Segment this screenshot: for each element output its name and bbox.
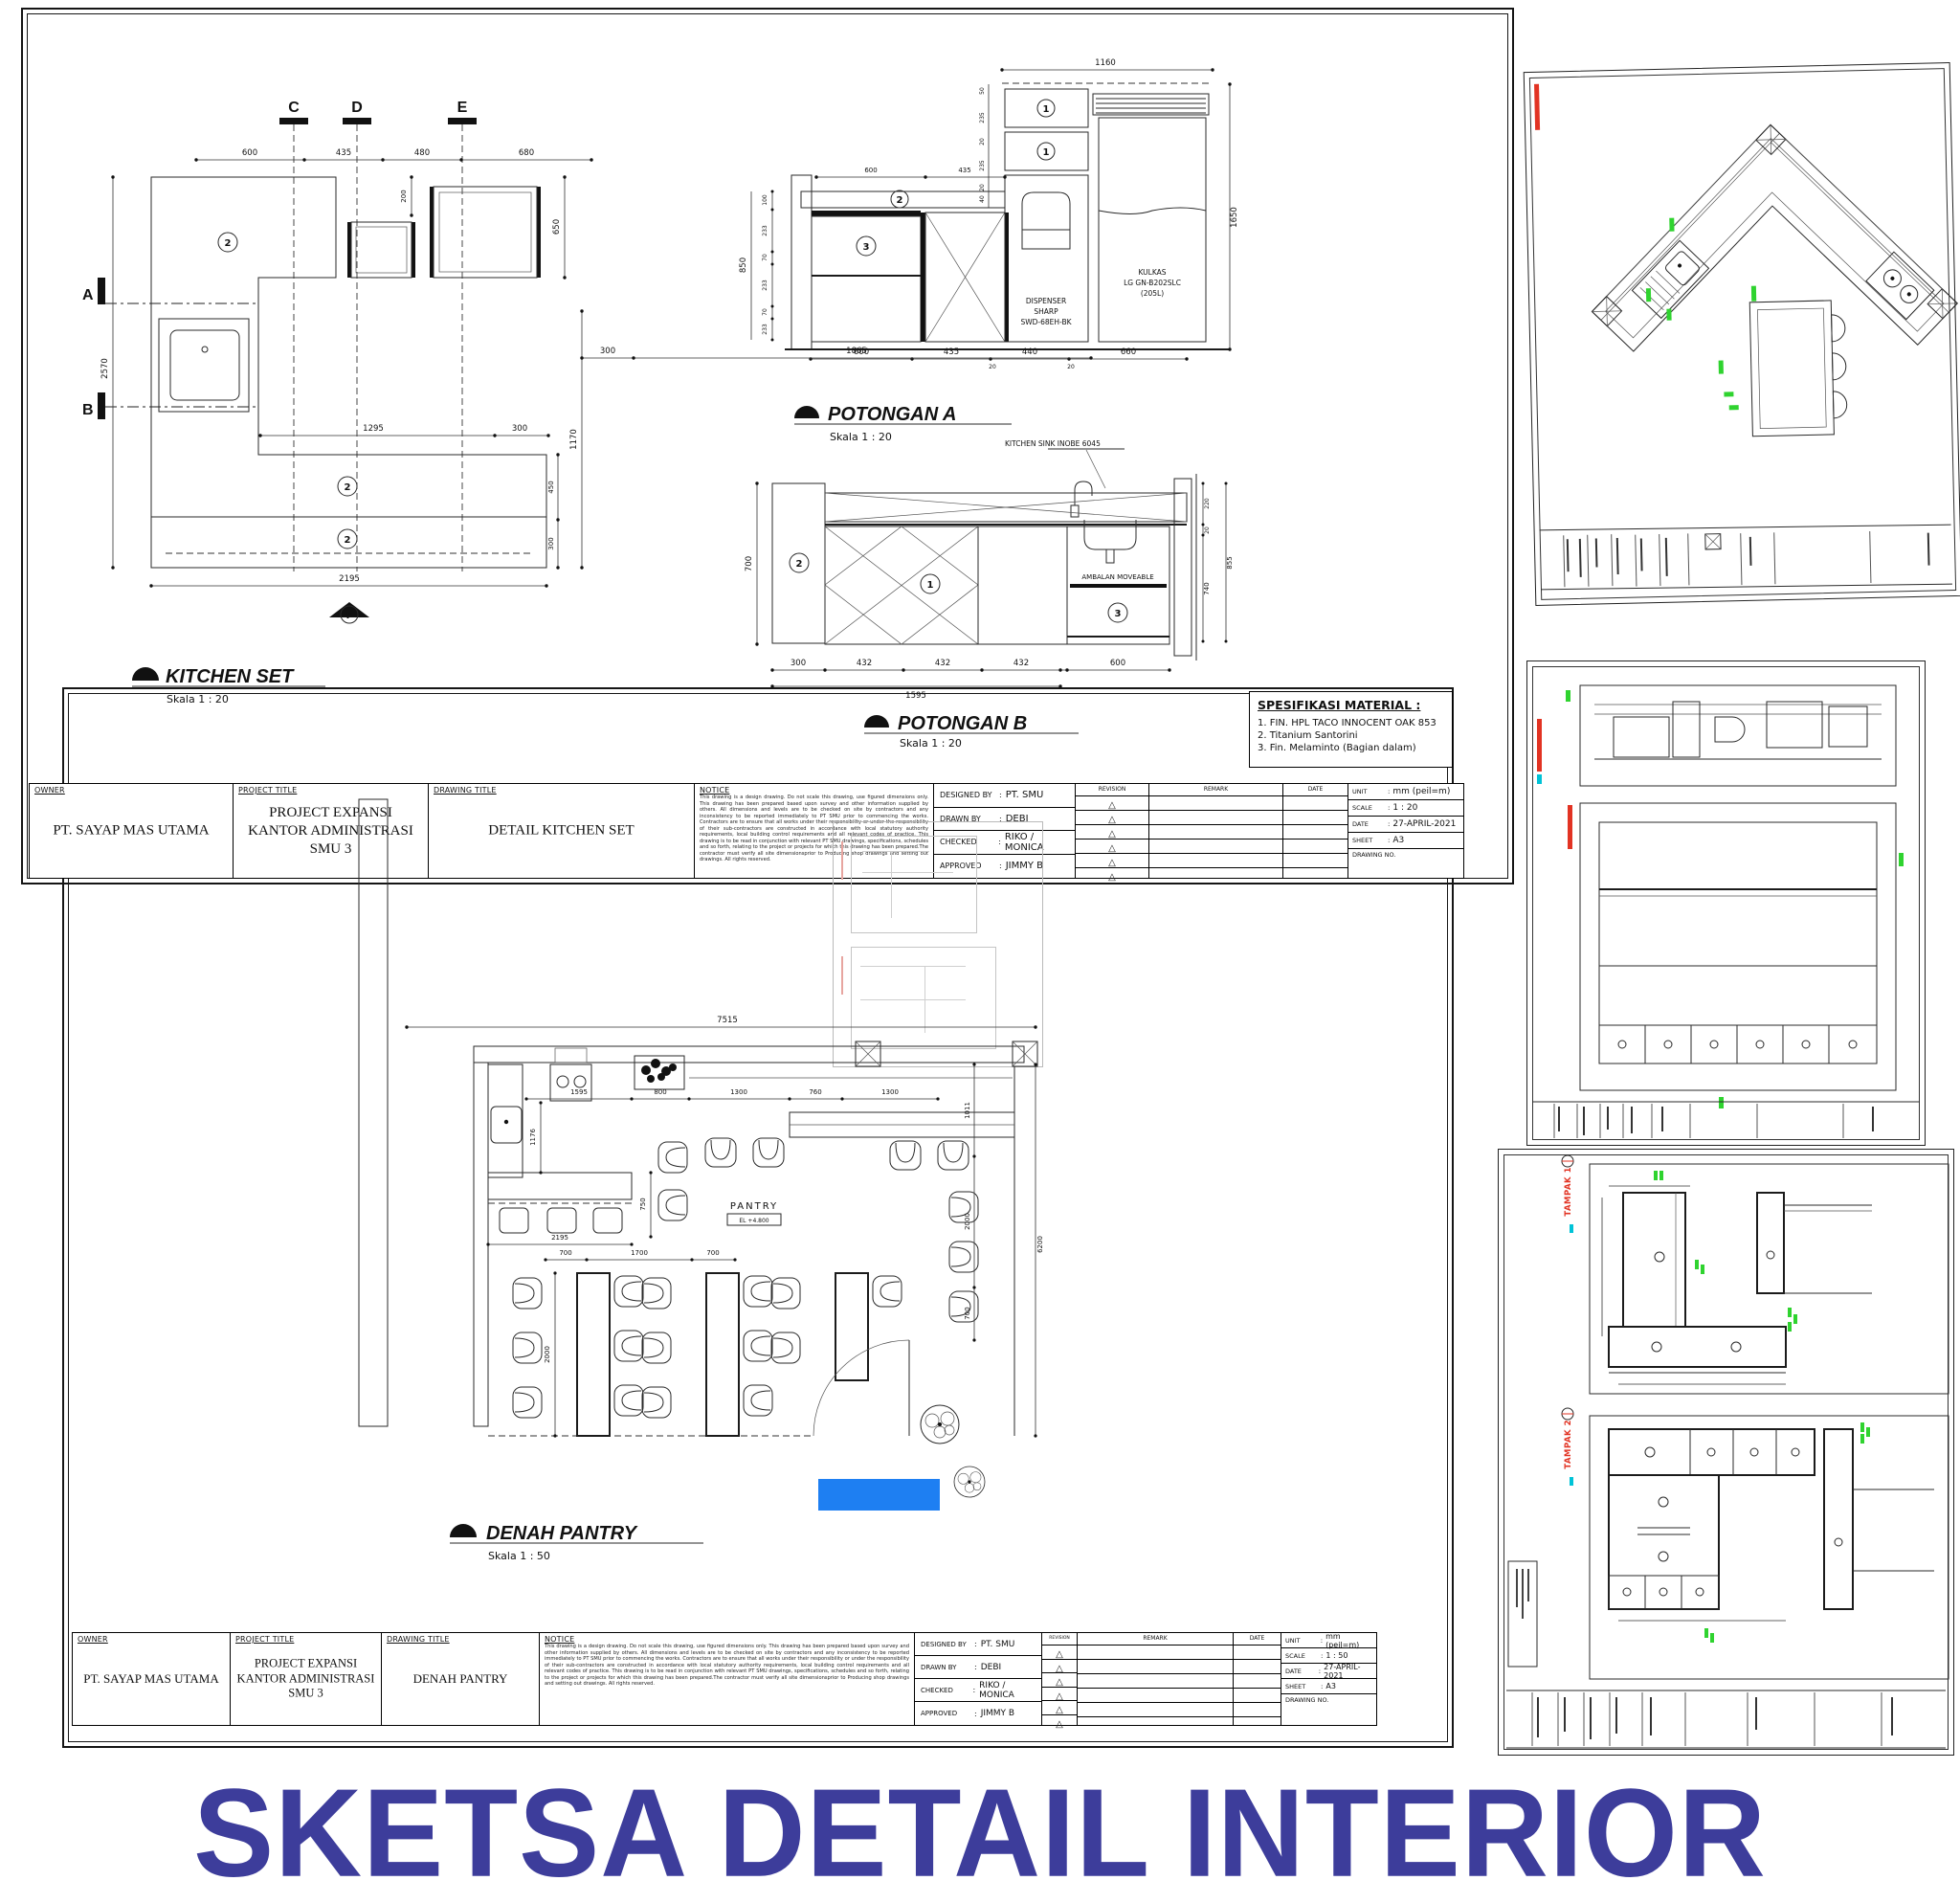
dim-label: 800 (654, 1088, 666, 1096)
tb-notice-text: This drawing is a design drawing. Do not… (540, 1633, 914, 1690)
chair (513, 1278, 542, 1309)
dim-label: 435 (958, 167, 970, 174)
tb-remark-head: REMARK (1078, 1633, 1233, 1646)
counter-strip (825, 493, 1187, 525)
faucet-section (1071, 481, 1092, 517)
wall-counter (488, 1064, 523, 1177)
dim-label: 760 (809, 1088, 821, 1096)
appliance-label: SHARP (1034, 307, 1058, 316)
chair (513, 1387, 542, 1418)
dim-label: 435 (336, 148, 351, 158)
chair (949, 1242, 978, 1272)
finish-marker-2: 2 (790, 553, 809, 572)
tb-owner-cell: OWNER PT. SAYAP MAS UTAMA (30, 784, 234, 878)
section-marker-a: A (82, 278, 258, 304)
drawing-title-text: KITCHEN SET (166, 666, 295, 687)
signoff-value: JIMMY B (981, 1709, 1014, 1718)
blue-highlight-rect (818, 1479, 940, 1511)
dim-label: 600 (1110, 659, 1125, 668)
chair (744, 1331, 772, 1361)
section-marker-d: D (343, 100, 371, 571)
marker-number: 1 (1043, 147, 1050, 158)
dim-7515: 7515 (405, 1016, 1036, 1029)
dim-label: 432 (1013, 659, 1029, 668)
section-label: E (457, 100, 468, 116)
chair (658, 1142, 687, 1173)
tb-project-head: PROJECT TITLE (235, 1635, 294, 1644)
drawing-scale-text: Skala 1 : 20 (900, 737, 962, 750)
dim-label: 680 (519, 148, 534, 158)
sink-callout: KITCHEN SINK INOBE 6045 (1005, 439, 1125, 488)
dim-label: 1700 (631, 1249, 648, 1257)
drawing-title-denah-pantry: DENAH PANTRY Skala 1 : 50 (450, 1523, 703, 1562)
green-annotation-marks (1566, 690, 1904, 1108)
meta-label: SHEET (1352, 837, 1385, 844)
dim-2195: 2195 (149, 574, 547, 588)
chair (642, 1332, 671, 1363)
signoff-label: DRAWN BY (921, 1664, 970, 1671)
dim-label: 1595 (570, 1088, 588, 1096)
colon: : (972, 1686, 975, 1694)
appliance-label: SWD-68EH-BK (1020, 318, 1072, 326)
chair (705, 1138, 736, 1167)
tb-drawing-cell: DRAWING TITLE DENAH PANTRY (382, 1633, 540, 1725)
tb-notice-head: NOTICE (545, 1635, 574, 1644)
tb-owner-value: PT. SAYAP MAS UTAMA (73, 1671, 230, 1687)
dim-top-row: 300 1865 (580, 347, 1092, 360)
kitchen-set-plan-drawing: C D E 600 435 480 680 (75, 81, 596, 713)
tb-owner-cell: OWNER PT. SAYAP MAS UTAMA (73, 1633, 231, 1725)
marker-number: 2 (897, 195, 903, 206)
signoff-value: RIKO / MONICA (979, 1681, 1041, 1700)
dim-label: 1160 (1095, 58, 1116, 68)
dim-label: 1865 (846, 347, 867, 356)
meta-value: A3 (1392, 836, 1404, 845)
dim-label: 1295 (363, 424, 384, 434)
meta-label: SCALE (1352, 804, 1385, 812)
tb-drawing-value: DENAH PANTRY (382, 1671, 539, 1687)
meta-value: 1 : 20 (1392, 803, 1417, 813)
dim-label: 700 (706, 1249, 719, 1257)
dim-label: 1300 (881, 1088, 899, 1096)
dim-label: 2195 (339, 574, 360, 584)
stool (547, 1208, 576, 1233)
chair (614, 1331, 643, 1361)
signoff-label: APPROVED (921, 1710, 970, 1717)
dim-label: 200 (400, 190, 408, 202)
dim-label: 7515 (717, 1016, 738, 1025)
colon: : (1321, 1637, 1323, 1645)
marker-number: 1 (927, 580, 934, 591)
door-swing (813, 1340, 909, 1436)
dim-label: 700 (964, 1307, 971, 1319)
chair (938, 1141, 969, 1170)
chair (513, 1332, 542, 1363)
chair (771, 1278, 800, 1309)
island-plan-mini (1749, 301, 1847, 437)
dim-1650: 1650 (1228, 82, 1239, 350)
planter-box (635, 1056, 684, 1089)
upper-cabinet-d (347, 222, 415, 278)
meta-value: 27-APRIL-2021 (1392, 819, 1456, 829)
dim-stack-left: 100 233 70 233 70 233 850 (739, 190, 774, 342)
chair (614, 1385, 643, 1416)
tb-revision-cell: REVISION (1076, 784, 1149, 878)
tb-signoff-cell: DESIGNED BY:PT. SMU DRAWN BY:DEBI CHECKE… (915, 1633, 1042, 1725)
meta-label: DRAWING NO. (1285, 1696, 1328, 1704)
meta-label: SHEET (1285, 1683, 1318, 1690)
dim-label: 850 (739, 257, 748, 273)
drawing-scale-text: Skala 1 : 50 (488, 1550, 550, 1562)
base-cabinet-section: 3 (812, 211, 921, 342)
mini-sheet-cad-plan (1524, 62, 1960, 606)
chair (744, 1276, 772, 1307)
spec-item: 1. FIN. HPL TACO INNOCENT OAK 853 (1258, 717, 1444, 729)
colon: : (974, 1640, 977, 1648)
spec-item: 3. Fin. Melaminto (Bagian dalam) (1258, 742, 1444, 754)
dim-label: 300 (512, 424, 527, 434)
appliance-label: KULKAS (1138, 268, 1166, 277)
dim-label: 2570 (100, 358, 110, 379)
dining-table-group-2 (642, 1273, 772, 1436)
section-label: B (82, 402, 94, 418)
drawing-scale-text: Skala 1 : 20 (167, 693, 229, 705)
dim-right-stack: 1011 2000 700 6200 (964, 1063, 1044, 1437)
dim-2000-left: 2000 (544, 1271, 557, 1437)
tb-project-line2: KANTOR ADMINISTRASI SMU 3 (231, 1671, 381, 1701)
marker-number: 2 (225, 238, 232, 249)
counter-section: 2 (801, 190, 1005, 208)
colon: : (1388, 837, 1390, 844)
dim-label: 235 (979, 112, 986, 123)
chair (642, 1278, 671, 1309)
spec-item: 2. Titanium Santorini (1258, 729, 1444, 742)
finish-marker-2: 2 (218, 233, 237, 252)
dim-label: 432 (935, 659, 950, 668)
sink-plan-mini (1632, 240, 1708, 318)
upper-cabinet-e (430, 187, 541, 278)
signoff-value: PT. SMU (981, 1640, 1015, 1649)
drawing-title-text: POTONGAN B (898, 713, 1027, 734)
sink-label: KITCHEN SINK INOBE 6045 (1005, 439, 1101, 448)
dim-750: 750 (639, 1171, 653, 1238)
dim-1176: 1176 (529, 1101, 543, 1174)
tampak-content (1499, 1150, 1953, 1755)
plant-icon (921, 1405, 959, 1444)
titleblock-pantry-sheet: OWNER PT. SAYAP MAS UTAMA PROJECT TITLE … (72, 1632, 1377, 1726)
colon: : (974, 1710, 977, 1718)
dim-label: 20 (979, 184, 986, 191)
stool (500, 1208, 528, 1233)
appliance-label: DISPENSER (1026, 297, 1066, 305)
marker-number: 2 (345, 535, 351, 546)
dim-label: 1650 (1230, 207, 1239, 228)
finish-marker-2b: 2 (338, 477, 357, 496)
colon: : (1388, 820, 1390, 828)
meta-label: SCALE (1285, 1652, 1318, 1660)
dim-700: 700 (745, 481, 759, 645)
signoff-label: DESIGNED BY (921, 1641, 970, 1648)
colon: : (1388, 788, 1390, 795)
meta-label: UNIT (1352, 788, 1385, 795)
dim-2195: 2195 (486, 1234, 633, 1246)
section-label: F (346, 611, 353, 621)
finish-marker-2c: 2 (338, 529, 357, 549)
signoff-value: DEBI (981, 1663, 1001, 1672)
green-annotation-marks (1654, 1171, 1797, 1332)
left-notes-box (1508, 1561, 1537, 1667)
dim-label: 450 (547, 481, 555, 493)
meta-value: A3 (1325, 1682, 1336, 1690)
tb-project-line1: PROJECT EXPANSI (231, 1657, 381, 1672)
meta-value: 27-APRIL-2021 (1324, 1663, 1376, 1680)
chair (658, 1190, 687, 1220)
dim-label: 70 (762, 254, 768, 261)
plant-icon (954, 1466, 985, 1497)
chair (873, 1276, 902, 1307)
dim-table-row: 700 1700 700 (544, 1249, 736, 1262)
section-label: D (351, 100, 363, 116)
chair (744, 1385, 772, 1416)
tb-date-cell: DATE (1283, 784, 1348, 878)
chair (614, 1276, 643, 1307)
denah-pantry-drawing: 7515 (354, 766, 1053, 1599)
meta-label: DATE (1285, 1668, 1316, 1675)
chair (753, 1138, 784, 1167)
dim-1160: 1160 (1000, 58, 1214, 72)
mini-sheet-elevations-1 (1526, 660, 1926, 1146)
meta-label: DATE (1352, 820, 1385, 828)
left-shelving-wall (359, 799, 388, 1426)
colon: : (1321, 1683, 1323, 1690)
dim-label: 1176 (529, 1129, 537, 1146)
section-marker-b: B (82, 392, 258, 419)
appliance-label: LG GN-B202SLC (1124, 279, 1181, 287)
marker-number: 3 (1115, 609, 1122, 619)
dispenser-section: DISPENSER SHARP SWD-68EH-BK (1005, 175, 1088, 342)
window-counter (790, 1112, 1014, 1137)
dim-label: 2000 (964, 1213, 971, 1230)
dim-1295-300: 1295 300 (258, 424, 549, 437)
dim-top-row: 600 435 480 680 (194, 148, 592, 162)
room-level: EL +4.800 (739, 1218, 768, 1224)
meta-value: mm (peil=m) (1325, 1632, 1376, 1649)
dim-200: 200 (400, 175, 413, 216)
dim-label: 1011 (964, 1102, 971, 1119)
mini-sheet-tampak: TAMPAK 1 TAMPAK 2 (1498, 1149, 1954, 1756)
dim-label: 233 (762, 324, 768, 335)
drawing-title-potongan-b: POTONGAN B Skala 1 : 20 (864, 713, 1079, 750)
dim-label: 480 (414, 148, 430, 158)
dining-table-group-3 (771, 1273, 902, 1380)
marker-number: 2 (796, 559, 803, 570)
dim-label: 40 (979, 195, 986, 203)
dim-label: 750 (639, 1198, 647, 1210)
section-marker-f: F (329, 602, 369, 623)
tb-revision-cell: REVISION (1042, 1633, 1078, 1725)
dim-label: 220 (1204, 498, 1211, 509)
marker-number: 1 (1043, 104, 1050, 115)
x-door-cabinet (921, 213, 1009, 342)
dim-label: 50 (979, 87, 986, 95)
stool (593, 1208, 622, 1233)
dim-label: 6200 (1036, 1236, 1044, 1253)
marker-number: 2 (345, 482, 351, 493)
dim-600-435-counter: 600 435 (814, 167, 1006, 179)
drawing-title-kitchen-set: KITCHEN SET Skala 1 : 20 (132, 666, 325, 705)
tb-drawing-head: DRAWING TITLE (387, 1635, 450, 1644)
revision-triangle-icon (1056, 1713, 1063, 1731)
green-annotation-marks (1644, 216, 1759, 413)
meta-label: DRAWING NO. (1352, 851, 1395, 859)
titleblock-strip-mini (1532, 1102, 1920, 1138)
dim-label: 740 (1203, 582, 1211, 594)
dim-label: 432 (857, 659, 872, 668)
dim-label: 70 (762, 308, 768, 316)
potongan-b-drawing: 300 1865 KITCHEN SINK INOBE 6045 2 (569, 345, 1268, 747)
dim-label: 855 (1226, 556, 1234, 569)
dim-label: 300 (547, 537, 555, 549)
dim-label: 300 (600, 347, 615, 356)
titleblock-strip-mini (1540, 521, 1952, 593)
tb-project-head: PROJECT TITLE (238, 786, 297, 795)
section-marker-c: C (279, 100, 308, 571)
revision-triangle-icon (1108, 865, 1116, 884)
elevation-box-2 (1580, 803, 1896, 1090)
colon: : (1319, 1668, 1321, 1675)
dim-label: 20 (1204, 526, 1211, 534)
meta-value: 1 : 50 (1325, 1651, 1347, 1660)
tb-remark-cell: REMARK (1149, 784, 1283, 878)
dim-label: 2000 (544, 1346, 551, 1363)
tb-owner-head: OWNER (34, 786, 65, 795)
section-label: C (288, 100, 300, 116)
colon: : (974, 1663, 977, 1671)
appliance-label: (205L) (1141, 289, 1164, 298)
titleblock-strip-mini (1506, 1690, 1946, 1748)
tb-meta-cell: UNIT:mm (peil=m) SCALE:1 : 20 DATE:27-AP… (1348, 784, 1463, 878)
room-name: PANTRY (730, 1201, 778, 1212)
tb-remark-head: REMARK (1149, 784, 1282, 796)
section-label: A (82, 287, 94, 303)
dim-label: 1595 (905, 691, 926, 701)
dim-right-stack: 220 20 740 855 (1202, 482, 1235, 643)
dining-table-group-1 (513, 1273, 643, 1436)
chair (890, 1141, 921, 1170)
dim-vertical-left: 2570 (100, 175, 115, 569)
tb-owner-head: OWNER (78, 1635, 108, 1644)
tb-project-cell: PROJECT TITLE PROJECT EXPANSI KANTOR ADM… (231, 1633, 382, 1725)
tb-remark-cell: REMARK (1078, 1633, 1234, 1725)
dim-label: 2195 (551, 1234, 568, 1242)
meta-value: mm (peil=m) (1392, 787, 1450, 796)
marker-number: 3 (863, 242, 870, 253)
dim-label: 600 (242, 148, 257, 158)
shelf-label: AMBALAN MOVEABLE (1081, 573, 1153, 581)
sink-cabinet-section: AMBALAN MOVEABLE 3 (1067, 520, 1169, 644)
tb-date-head: DATE (1234, 1633, 1281, 1646)
dim-row-upper: 1595 800 1300 760 1300 (524, 1088, 939, 1101)
poster-canvas: C D E 600 435 480 680 (0, 0, 1960, 1903)
dim-label: 235 (979, 160, 986, 171)
x-cabinet-section: 1 (825, 526, 1067, 644)
tb-date-cell: DATE (1234, 1633, 1281, 1725)
sink-plan (159, 319, 249, 412)
dim-label: 1300 (730, 1088, 747, 1096)
dim-label: 100 (762, 194, 768, 206)
signoff-label: CHECKED (921, 1687, 969, 1694)
tb-date-head: DATE (1283, 784, 1347, 796)
elevation-box-1 (1580, 685, 1896, 786)
drawing-title-text: DENAH PANTRY (486, 1523, 638, 1544)
page-title: SKETSA DETAIL INTERIOR (0, 1760, 1960, 1903)
dim-label: 233 (762, 225, 768, 236)
colon: : (1321, 1652, 1323, 1660)
dim-label: 600 (864, 167, 877, 174)
tb-notice-cell: NOTICE This drawing is a design drawing.… (540, 1633, 915, 1725)
dim-label: 20 (979, 138, 986, 146)
elevation-content (1527, 661, 1925, 1145)
dim-label: 233 (762, 280, 768, 291)
fridge-section: KULKAS LG GN-B202SLC (205L) (1093, 94, 1209, 342)
dim-stack-right: 50 235 20 235 20 40 (979, 84, 989, 208)
colon: : (1388, 804, 1390, 812)
material-spec-box: SPESIFIKASI MATERIAL : 1. FIN. HPL TACO … (1249, 691, 1453, 768)
meta-label: UNIT (1285, 1637, 1318, 1645)
dim-450-300: 450 300 (547, 453, 560, 569)
tampak-1-box (1590, 1164, 1949, 1394)
spec-title: SPESIFIKASI MATERIAL : (1258, 698, 1444, 712)
room-label: PANTRY EL +4.800 (727, 1201, 781, 1225)
chair (642, 1387, 671, 1418)
island-counter (488, 1173, 632, 1233)
wall-section-hatch (1174, 479, 1192, 656)
dim-label: 300 (791, 659, 806, 668)
cad-plan-content (1525, 63, 1957, 599)
tb-owner-value: PT. SAYAP MAS UTAMA (30, 822, 233, 840)
upper-drawers: 1 1 (1002, 83, 1213, 170)
tb-meta-cell: UNIT:mm (peil=m) SCALE:1 : 50 DATE:27-AP… (1281, 1633, 1376, 1725)
dim-label: 700 (745, 556, 754, 571)
section-marker-e: E (448, 100, 477, 571)
chair (771, 1332, 800, 1363)
dim-label: 700 (559, 1249, 571, 1257)
tampak-2-box (1590, 1416, 1949, 1679)
dim-bottom-row: 300 432 432 432 600 1595 (770, 659, 1170, 701)
